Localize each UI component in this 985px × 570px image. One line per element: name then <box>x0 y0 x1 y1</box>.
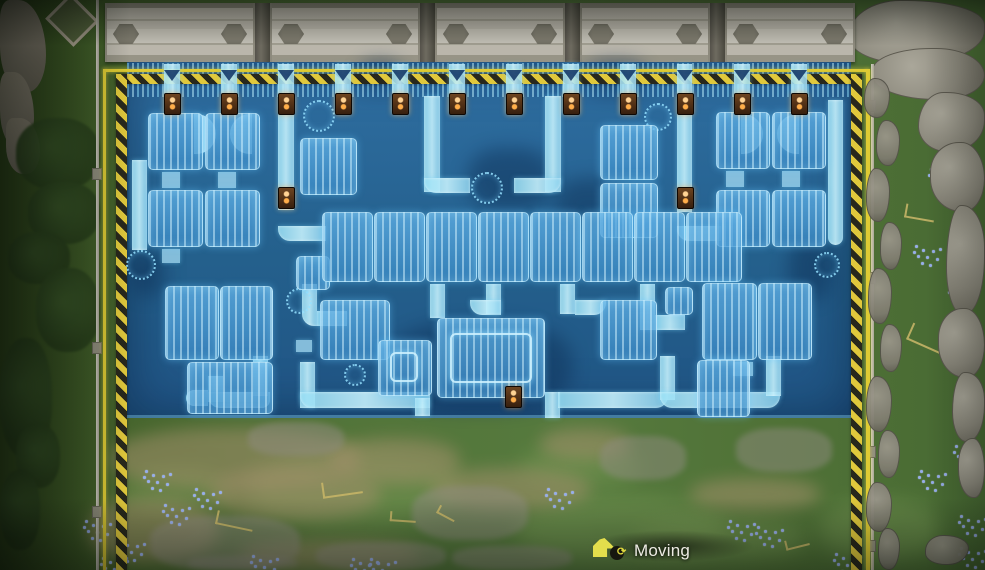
hologram-machine[interactable] <box>686 212 742 282</box>
hologram-machine[interactable] <box>758 283 812 360</box>
hologram-ring <box>814 252 840 278</box>
belt-direction-arrow <box>449 70 465 81</box>
conveyor-belt[interactable] <box>424 178 470 193</box>
belt-connector[interactable] <box>296 340 312 352</box>
conveyor-belt[interactable] <box>560 284 575 314</box>
conveyor-belt[interactable] <box>430 284 445 318</box>
flower <box>918 476 921 479</box>
hologram-machine[interactable] <box>205 113 260 170</box>
flower <box>962 525 965 528</box>
power-pole[interactable] <box>505 386 522 408</box>
flower <box>178 523 181 526</box>
power-pole[interactable] <box>791 93 808 115</box>
flower <box>387 563 390 566</box>
flower <box>394 561 397 564</box>
rock-rubble <box>880 324 902 372</box>
flower <box>136 545 139 548</box>
flower <box>922 249 925 252</box>
flower <box>561 507 564 510</box>
belt-direction-arrow <box>506 70 522 81</box>
pebble-patch <box>248 422 344 456</box>
hologram-machine[interactable] <box>600 125 658 180</box>
flower <box>915 245 918 248</box>
conveyor-belt[interactable] <box>470 300 501 315</box>
flower <box>568 501 571 504</box>
flower <box>197 498 200 501</box>
hologram-ring <box>303 100 335 132</box>
flower <box>971 558 974 561</box>
flower <box>944 473 947 476</box>
pebble-patch <box>316 542 446 570</box>
flower <box>835 553 838 556</box>
rock <box>958 438 985 498</box>
flower <box>175 515 178 518</box>
designator-hazard-stripe <box>851 74 862 570</box>
designator-line <box>103 69 106 570</box>
flower <box>545 494 548 497</box>
rock <box>946 205 985 315</box>
power-pole[interactable] <box>392 93 409 115</box>
designator-hazard-stripe <box>116 74 127 570</box>
flower <box>846 564 849 567</box>
flower <box>929 264 932 267</box>
flower <box>166 514 169 517</box>
conveyor-belt[interactable] <box>514 178 561 193</box>
designator-line <box>103 69 869 72</box>
flower <box>981 528 984 531</box>
flower <box>352 558 355 561</box>
rock-rubble <box>880 222 902 270</box>
industrial-container[interactable] <box>580 3 710 62</box>
flower <box>209 507 212 510</box>
rock-rubble <box>876 120 900 166</box>
power-pole[interactable] <box>563 93 580 115</box>
pebble-patch <box>600 436 686 480</box>
rock <box>938 308 985 378</box>
hologram-ring <box>286 288 312 314</box>
flower <box>913 251 916 254</box>
flower <box>169 473 172 476</box>
rock-rubble <box>925 535 969 565</box>
flower <box>83 526 86 529</box>
fence-post[interactable] <box>92 342 102 354</box>
belt-connector[interactable] <box>218 172 236 188</box>
flower <box>202 492 205 495</box>
flower <box>350 564 353 567</box>
flower <box>547 488 550 491</box>
flower <box>842 557 845 560</box>
pebble-patch <box>452 546 572 570</box>
flower <box>263 566 266 569</box>
hologram-machine[interactable] <box>165 286 219 360</box>
power-pole[interactable] <box>449 93 466 115</box>
flower <box>170 521 173 524</box>
tree-foliage <box>36 268 100 352</box>
flower <box>370 558 373 561</box>
flower <box>254 565 257 568</box>
flower <box>920 470 923 473</box>
flower <box>185 517 188 520</box>
flower <box>156 481 159 484</box>
flower <box>164 504 167 507</box>
hologram-machine[interactable] <box>374 212 425 282</box>
belt-direction-arrow <box>278 70 294 81</box>
flower <box>147 480 150 483</box>
flower <box>252 555 255 558</box>
flower <box>554 492 557 495</box>
flower <box>359 562 362 565</box>
flower <box>140 553 143 556</box>
flower <box>974 534 977 537</box>
tree-foliage <box>0 470 40 550</box>
flower <box>837 563 840 566</box>
rock-rubble <box>866 376 892 432</box>
flower <box>109 523 112 526</box>
hologram-machine[interactable] <box>697 360 750 417</box>
flower <box>216 501 219 504</box>
machine-glow-frame <box>450 333 532 383</box>
flower <box>932 250 935 253</box>
flower <box>133 559 136 562</box>
container-gap <box>710 3 725 64</box>
hologram-ring <box>471 172 503 204</box>
flower <box>152 474 155 477</box>
dry-twig <box>904 204 936 223</box>
flower <box>159 489 162 492</box>
hologram-machine[interactable] <box>772 190 826 247</box>
rock-rubble <box>878 528 900 570</box>
flower <box>171 508 174 511</box>
belt-direction-arrow <box>620 70 636 81</box>
rock <box>930 142 985 212</box>
flower <box>99 539 102 542</box>
conveyor-belt[interactable] <box>558 392 668 408</box>
rock-rubble <box>864 78 890 118</box>
rock-rubble <box>866 168 890 222</box>
belt-direction-arrow <box>563 70 579 81</box>
industrial-container[interactable] <box>270 3 420 62</box>
conveyor-belt[interactable] <box>415 398 430 416</box>
flower <box>922 480 925 483</box>
flower <box>87 530 90 533</box>
hologram-machine[interactable] <box>148 113 203 170</box>
belt-direction-arrow <box>221 70 237 81</box>
flower <box>926 487 929 490</box>
flower <box>143 476 146 479</box>
belt-direction-arrow <box>677 70 693 81</box>
flower <box>259 559 262 562</box>
fence-post[interactable] <box>92 506 102 518</box>
belt-direction-arrow <box>791 70 807 81</box>
hologram-ring <box>126 250 156 280</box>
hologram-machine[interactable] <box>205 190 260 247</box>
power-pole[interactable] <box>734 93 751 115</box>
flower <box>729 520 732 523</box>
power-pole[interactable] <box>506 93 523 115</box>
flower <box>250 561 253 564</box>
industrial-container[interactable] <box>105 3 255 62</box>
flower <box>926 256 929 259</box>
rock-rubble <box>878 430 900 478</box>
fence-wall[interactable] <box>96 0 99 570</box>
hologram-machine[interactable] <box>702 283 757 360</box>
flower <box>966 532 969 535</box>
hologram-machine[interactable] <box>148 190 203 247</box>
hologram-machine[interactable] <box>665 287 693 315</box>
rock-rubble <box>868 268 892 324</box>
belt-direction-arrow <box>392 70 408 81</box>
container-gap <box>420 3 435 64</box>
flower <box>92 524 95 527</box>
power-pole[interactable] <box>278 187 295 209</box>
flower <box>981 560 984 563</box>
hologram-machine[interactable] <box>582 212 633 282</box>
flower <box>971 526 974 529</box>
flower <box>91 537 94 540</box>
rotate-glyph: ⟳ <box>617 546 626 559</box>
flower <box>553 505 556 508</box>
container-gap <box>565 3 580 64</box>
flower <box>166 483 169 486</box>
flower <box>960 515 963 518</box>
pebble-patch <box>412 486 528 540</box>
rock-peak <box>45 0 99 47</box>
hologram-ring <box>344 364 366 386</box>
dry-twig <box>390 511 417 523</box>
hologram-machine[interactable] <box>530 212 581 282</box>
hologram-machine[interactable] <box>600 300 657 360</box>
belt-direction-arrow <box>164 70 180 81</box>
pebble-patch <box>188 556 298 570</box>
flower <box>966 564 969 567</box>
rotate-cycle-icon: ⟳ <box>610 546 624 560</box>
flower <box>931 481 934 484</box>
flower <box>377 562 380 565</box>
flower <box>977 520 980 523</box>
flower <box>195 488 198 491</box>
flower <box>974 566 977 569</box>
flower <box>953 451 956 454</box>
power-pole[interactable] <box>221 93 238 115</box>
flower <box>571 491 574 494</box>
flower <box>917 255 920 258</box>
conveyor-belt[interactable] <box>655 315 685 330</box>
flower <box>934 489 937 492</box>
flower <box>219 491 222 494</box>
flower <box>558 499 561 502</box>
industrial-container[interactable] <box>725 3 855 62</box>
tree-foliage <box>16 118 100 190</box>
hologram-machine[interactable] <box>772 112 826 169</box>
machine-glow-frame <box>390 352 418 382</box>
flower <box>109 561 112 564</box>
belt-connector[interactable] <box>726 171 744 187</box>
power-pole[interactable] <box>677 93 694 115</box>
rock <box>952 372 985 442</box>
flower <box>106 533 109 536</box>
flower <box>193 494 196 497</box>
hologram-machine[interactable] <box>322 212 373 282</box>
flower <box>936 258 939 261</box>
conveyor-belt[interactable] <box>828 100 843 245</box>
power-pole[interactable] <box>620 93 637 115</box>
flower <box>958 521 961 524</box>
industrial-container[interactable] <box>435 3 565 62</box>
mode-label: Moving <box>634 541 690 561</box>
game-viewport[interactable]: ⟳ Moving <box>0 0 985 570</box>
hologram-machine[interactable] <box>426 212 477 282</box>
flower <box>955 445 958 448</box>
flower <box>188 507 191 510</box>
flower <box>212 493 215 496</box>
flower <box>162 510 165 513</box>
flower <box>939 248 942 251</box>
power-pole[interactable] <box>164 93 181 115</box>
hologram-machine[interactable] <box>187 362 273 414</box>
flower <box>564 493 567 496</box>
power-pole[interactable] <box>278 93 295 115</box>
hologram-machine[interactable] <box>716 112 770 169</box>
fence-post[interactable] <box>92 168 102 180</box>
flower <box>937 475 940 478</box>
flower <box>201 505 204 508</box>
flower <box>162 475 165 478</box>
flower <box>967 519 970 522</box>
belt-direction-arrow <box>734 70 750 81</box>
power-pole[interactable] <box>335 93 352 115</box>
flower <box>977 552 980 555</box>
flower <box>206 499 209 502</box>
dirt-patch <box>690 478 820 510</box>
flower <box>927 474 930 477</box>
flower <box>151 487 154 490</box>
hologram-machine[interactable] <box>220 286 273 360</box>
power-pole[interactable] <box>677 187 694 209</box>
flower <box>549 498 552 501</box>
conveyor-belt[interactable] <box>132 160 147 250</box>
flower <box>145 470 148 473</box>
flower <box>833 559 836 562</box>
flower <box>941 483 944 486</box>
belt-connector[interactable] <box>162 249 180 263</box>
belt-direction-arrow <box>335 70 351 81</box>
hologram-machine[interactable] <box>634 212 685 282</box>
flower <box>276 558 279 561</box>
flower <box>130 551 133 554</box>
flower <box>269 560 272 563</box>
flower <box>368 564 371 567</box>
flower <box>85 520 88 523</box>
flower <box>143 543 146 546</box>
flower <box>921 262 924 265</box>
hologram-machine[interactable] <box>300 138 357 195</box>
pebble-patch <box>736 428 832 472</box>
conveyor-belt[interactable] <box>278 226 326 241</box>
conveyor-belt[interactable] <box>766 356 781 396</box>
belt-connector[interactable] <box>162 172 180 188</box>
flower <box>181 509 184 512</box>
hologram-machine[interactable] <box>478 212 529 282</box>
belt-connector[interactable] <box>782 171 800 187</box>
container-gap <box>255 3 270 64</box>
